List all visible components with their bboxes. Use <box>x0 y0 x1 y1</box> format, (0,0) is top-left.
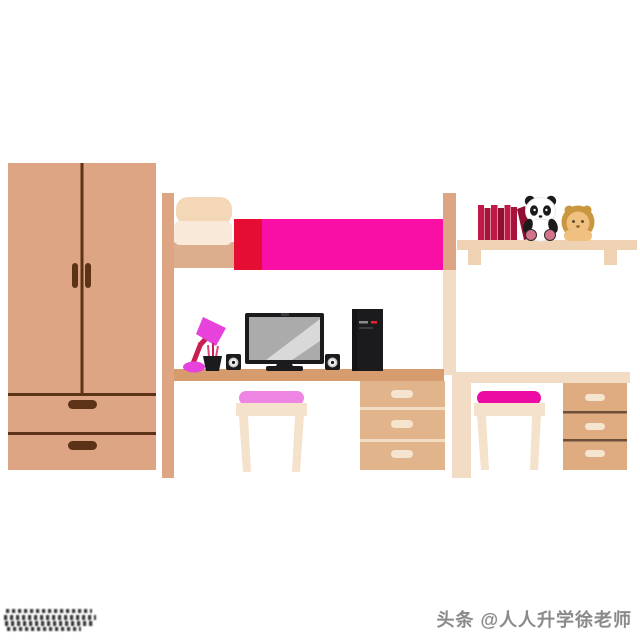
wardrobe <box>8 163 156 470</box>
lion-face <box>567 212 590 235</box>
book <box>491 205 498 240</box>
stool-left-leg <box>292 416 304 472</box>
pen-cup-body <box>203 356 222 371</box>
stool-right <box>474 391 545 470</box>
pillow-top <box>176 197 232 225</box>
speaker-left <box>226 354 241 370</box>
toutiao-watermark: 头条 @人人升学徐老师 <box>436 606 632 632</box>
drawer-handle <box>391 420 413 428</box>
blanket-pink-section <box>262 219 443 270</box>
wardrobe-drawer-handle-2 <box>68 441 97 450</box>
desk-left <box>174 369 445 470</box>
drawer-handle <box>391 450 413 458</box>
panda-eye-left <box>533 209 535 211</box>
smudge-row <box>6 609 92 613</box>
monitor-camera <box>281 313 289 316</box>
drawer-handle <box>391 390 413 398</box>
wardrobe-door-gap <box>81 163 84 394</box>
illegible-watermark-smudge <box>4 608 98 636</box>
drawer-line <box>360 407 445 410</box>
stool-left-apron <box>236 403 307 416</box>
drawer-line <box>563 411 627 414</box>
stool-right-leg <box>477 416 489 470</box>
stool-left-seat <box>239 391 304 405</box>
drawer-unit-right <box>563 383 627 470</box>
wardrobe-divider-top <box>8 393 156 396</box>
lion-plush <box>562 206 595 242</box>
wardrobe-divider-bottom <box>8 432 156 435</box>
panda-foot-right <box>545 230 556 241</box>
desk-right-top <box>452 372 630 383</box>
bed-post-right <box>443 193 456 272</box>
blanket-red-section <box>234 219 262 270</box>
monitor-stand-base <box>266 366 303 371</box>
drawer-handle <box>585 450 605 457</box>
books <box>478 205 532 240</box>
pen-cup <box>203 343 222 371</box>
book <box>478 205 484 240</box>
room-illustration <box>0 0 640 640</box>
drawer-line <box>360 439 445 442</box>
book <box>485 208 491 240</box>
desk-right-leg <box>452 383 471 478</box>
lion-eye-left <box>572 220 575 223</box>
tower-power-led <box>371 321 377 324</box>
bed-post-right-lower <box>443 270 456 375</box>
lion-eye-right <box>581 220 584 223</box>
bed-base <box>174 242 236 268</box>
lion-nose <box>576 225 580 227</box>
panda-nose <box>539 215 543 217</box>
lamp-base <box>183 362 205 373</box>
smudge-row <box>4 615 96 620</box>
pillow-bottom <box>174 221 232 245</box>
tower-drive-slot <box>359 321 368 324</box>
pen <box>208 345 209 357</box>
stool-left-leg <box>239 416 251 472</box>
wall-shelf <box>457 196 637 265</box>
shelf-bracket-right <box>604 250 617 265</box>
illustration-canvas: 头条 @人人升学徐老师 <box>0 0 640 640</box>
tower-vent-line <box>359 327 373 329</box>
book <box>498 208 504 240</box>
stool-left <box>236 391 307 472</box>
speaker-right <box>325 354 340 370</box>
pc-tower <box>352 309 383 371</box>
stool-right-leg <box>530 416 541 470</box>
tower-side-stripe <box>352 309 357 371</box>
panda-foot-left <box>526 230 537 241</box>
wardrobe-door-handle-right <box>85 263 91 288</box>
book <box>505 205 511 240</box>
drawer-line <box>563 439 627 442</box>
book <box>511 207 517 240</box>
drawer-unit-left <box>360 381 445 470</box>
wardrobe-drawer-handle-1 <box>68 400 97 409</box>
shelf-board <box>457 240 637 250</box>
smudge-row <box>5 621 95 626</box>
wardrobe-door-handle-left <box>72 263 78 288</box>
panda-eye-right <box>545 209 547 211</box>
bed-post-left <box>162 193 174 478</box>
monitor <box>245 313 324 371</box>
drawer-handle <box>585 423 605 430</box>
speaker-cone-center <box>232 361 235 364</box>
shelf-bracket-left <box>468 250 481 265</box>
stool-right-apron <box>474 403 545 416</box>
pen <box>216 346 218 357</box>
speaker-cone-center <box>331 361 334 364</box>
drawer-handle <box>585 394 605 401</box>
stool-right-seat <box>477 391 541 405</box>
smudge-row <box>7 627 81 631</box>
